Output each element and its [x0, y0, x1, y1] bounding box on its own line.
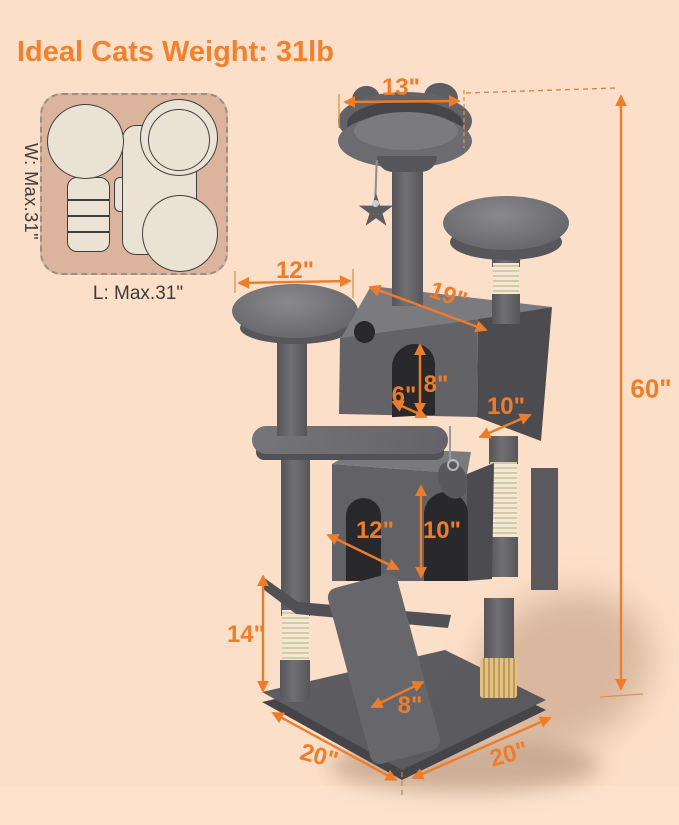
- footprint-bowl-rim: [148, 109, 210, 171]
- top-bowl-stem: [377, 156, 437, 172]
- footprint-perch-bottomright: [142, 195, 218, 272]
- right-mid-post: [489, 436, 518, 464]
- footprint-ladder-rung: [68, 231, 109, 233]
- left-lower-post-sisal: [282, 610, 309, 664]
- right-mid-post-sisal: [490, 462, 517, 539]
- right-perch-post-lower: [492, 294, 520, 324]
- footprint-length-label: L: Max.31": [68, 283, 208, 305]
- right-perch: [443, 196, 569, 250]
- left-perch: [232, 284, 358, 338]
- dim-label-top-perch-width: 13": [382, 74, 420, 102]
- dim-label-upper-condo-depth: 10": [487, 393, 525, 421]
- footprint-perch-topleft: [47, 104, 124, 179]
- right-perch-post-sisal: [493, 263, 519, 297]
- footprint-diagram: [40, 93, 228, 275]
- top-perch-post: [392, 158, 423, 306]
- right-mid-post-lower: [489, 537, 518, 577]
- footprint-ladder-rung: [68, 199, 109, 201]
- ball-toy-bell: [447, 459, 459, 471]
- page-title: Ideal Cats Weight: 31lb: [17, 36, 334, 69]
- brush-post: [484, 598, 514, 664]
- floor-line: [0, 786, 679, 825]
- footprint-width-label: W: Max.31": [20, 143, 41, 253]
- dim-label-upper-entry-depth: 6": [392, 382, 417, 410]
- dim-label-left-perch-width: 12": [276, 257, 314, 285]
- dim-label-total-height: 60": [630, 374, 671, 405]
- product-dimension-infographic: { "title": "Ideal Cats Weight: 31lb", "f…: [0, 0, 679, 825]
- dim-label-lower-section-height: 14": [227, 621, 265, 649]
- star-toy-icon: [358, 193, 394, 229]
- grooming-brush: [480, 658, 517, 698]
- dim-label-lower-condo-height: 10": [423, 517, 461, 545]
- top-bowl-cushion: [354, 112, 458, 150]
- dim-label-upper-entry-height: 8": [424, 371, 449, 399]
- dim-label-lower-condo-width: 12": [356, 517, 394, 545]
- dim-label-base-depth-left: 20": [297, 739, 341, 776]
- dim-label-ramp-width: 8": [398, 692, 423, 720]
- guide-top-dashed: [466, 88, 616, 93]
- footprint-ladder-rung: [68, 215, 109, 217]
- left-lower-post-cuff: [280, 660, 310, 702]
- star-toy-bell: [372, 200, 379, 207]
